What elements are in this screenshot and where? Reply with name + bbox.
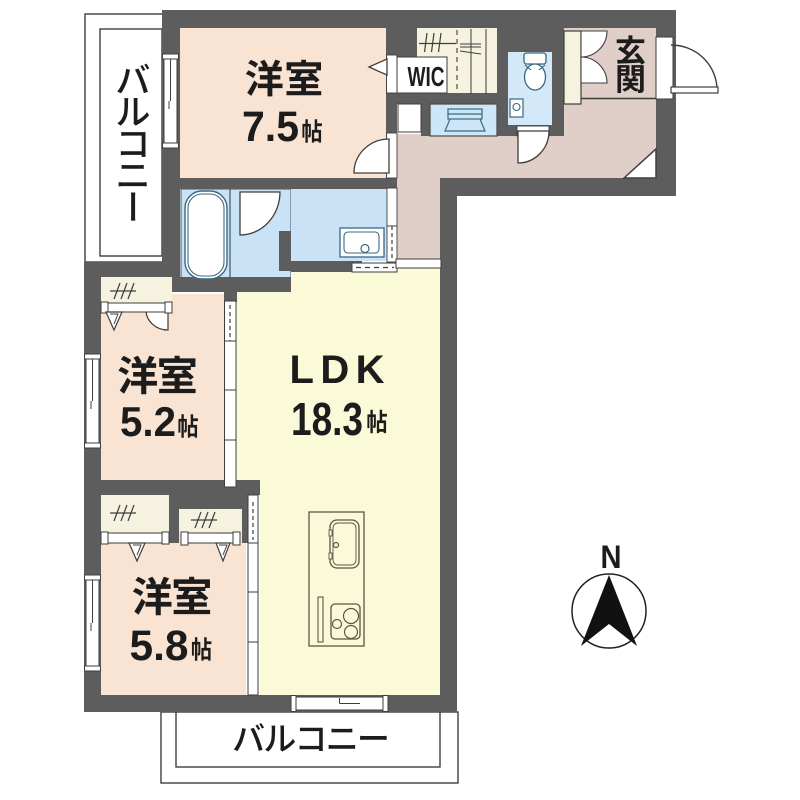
svg-text:LDK: LDK — [290, 348, 385, 392]
svg-text:5.8: 5.8 — [130, 622, 189, 670]
svg-text:N: N — [601, 539, 622, 575]
svg-text:5.2: 5.2 — [120, 398, 176, 445]
svg-text:7.5: 7.5 — [242, 103, 299, 151]
svg-text:18.3: 18.3 — [291, 393, 363, 445]
svg-text:WIC: WIC — [408, 61, 445, 92]
